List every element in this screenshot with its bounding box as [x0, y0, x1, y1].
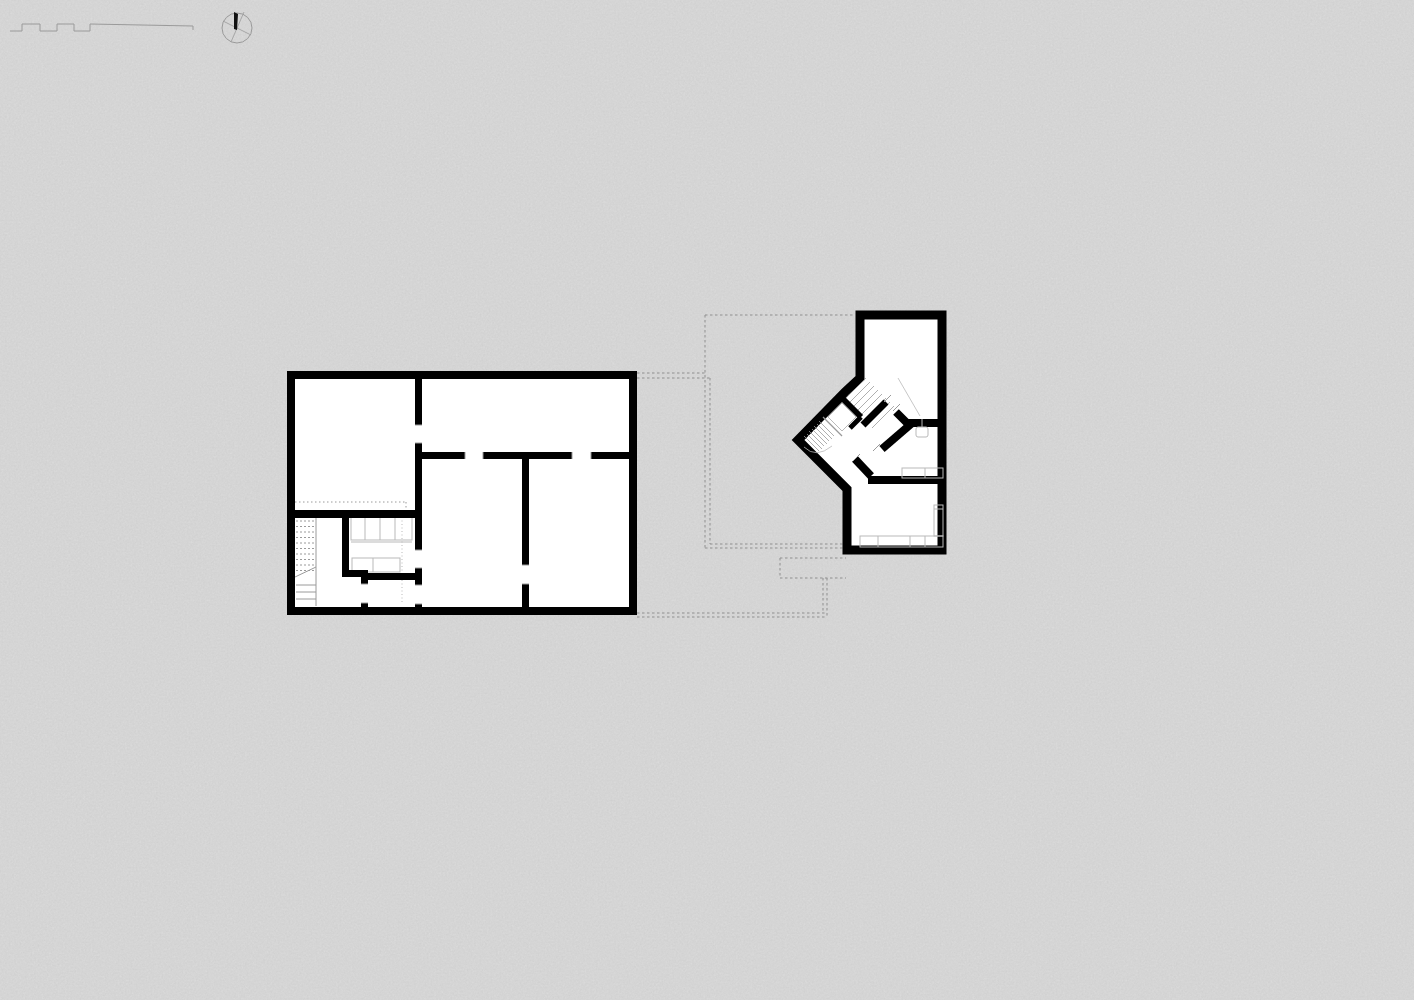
left-outer-wall-bottom	[287, 607, 637, 615]
floor-plan-canvas	[0, 0, 1414, 1000]
left-wall-stair-side	[342, 518, 349, 577]
left-outer-wall-west	[287, 371, 295, 615]
left-wall-lower-divider-lower	[522, 584, 529, 607]
left-wall-cross-2	[483, 452, 572, 459]
left-wall-rooms-divider-lower	[415, 568, 422, 585]
left-wall-stair-step	[342, 570, 368, 577]
left-wall-closet-side-upper	[361, 577, 368, 584]
left-wall-lower-divider-upper	[522, 459, 529, 565]
left-wall-rooms-divider-upper	[415, 379, 422, 425]
left-wall-cross-1	[422, 452, 465, 459]
left-outer-wall-top	[287, 371, 637, 379]
left-wall-closet-side-lower	[361, 603, 368, 607]
paper-texture	[0, 0, 1414, 1000]
left-building-floor	[287, 371, 637, 615]
left-wall-rooms-divider-mid	[415, 443, 422, 550]
left-outer-wall-east	[629, 371, 637, 615]
left-wall-closet-top	[368, 573, 415, 580]
left-wall-cross-3	[591, 452, 629, 459]
drawing-sheet	[0, 0, 1414, 1000]
left-wall-stair-top	[295, 510, 422, 518]
